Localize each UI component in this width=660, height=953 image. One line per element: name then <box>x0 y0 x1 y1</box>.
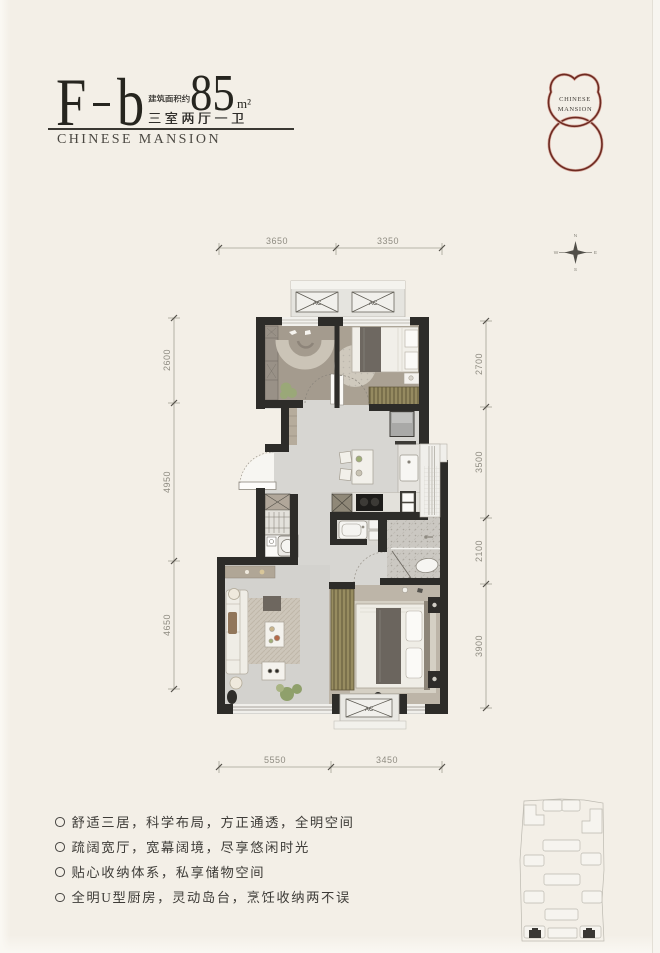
svg-text:2600: 2600 <box>162 349 172 371</box>
svg-text:AC: AC <box>313 301 322 307</box>
svg-text:4650: 4650 <box>162 614 172 636</box>
svg-text:3450: 3450 <box>376 755 398 765</box>
svg-text:3650: 3650 <box>266 236 288 246</box>
svg-text:E: E <box>594 250 597 256</box>
svg-text:5550: 5550 <box>264 755 286 765</box>
svg-text:W: W <box>554 250 559 256</box>
svg-text:MANSION: MANSION <box>558 106 593 113</box>
svg-text:N: N <box>574 233 578 239</box>
svg-text:3500: 3500 <box>474 451 484 473</box>
svg-text:AC: AC <box>369 301 378 307</box>
svg-text:2100: 2100 <box>474 540 484 562</box>
svg-text:2700: 2700 <box>474 353 484 375</box>
svg-text:3900: 3900 <box>474 635 484 657</box>
svg-text:S: S <box>574 267 577 273</box>
svg-text:4950: 4950 <box>162 471 172 493</box>
svg-text:AC: AC <box>365 707 374 713</box>
svg-text:3350: 3350 <box>377 236 399 246</box>
svg-text:CHINESE: CHINESE <box>559 96 591 103</box>
